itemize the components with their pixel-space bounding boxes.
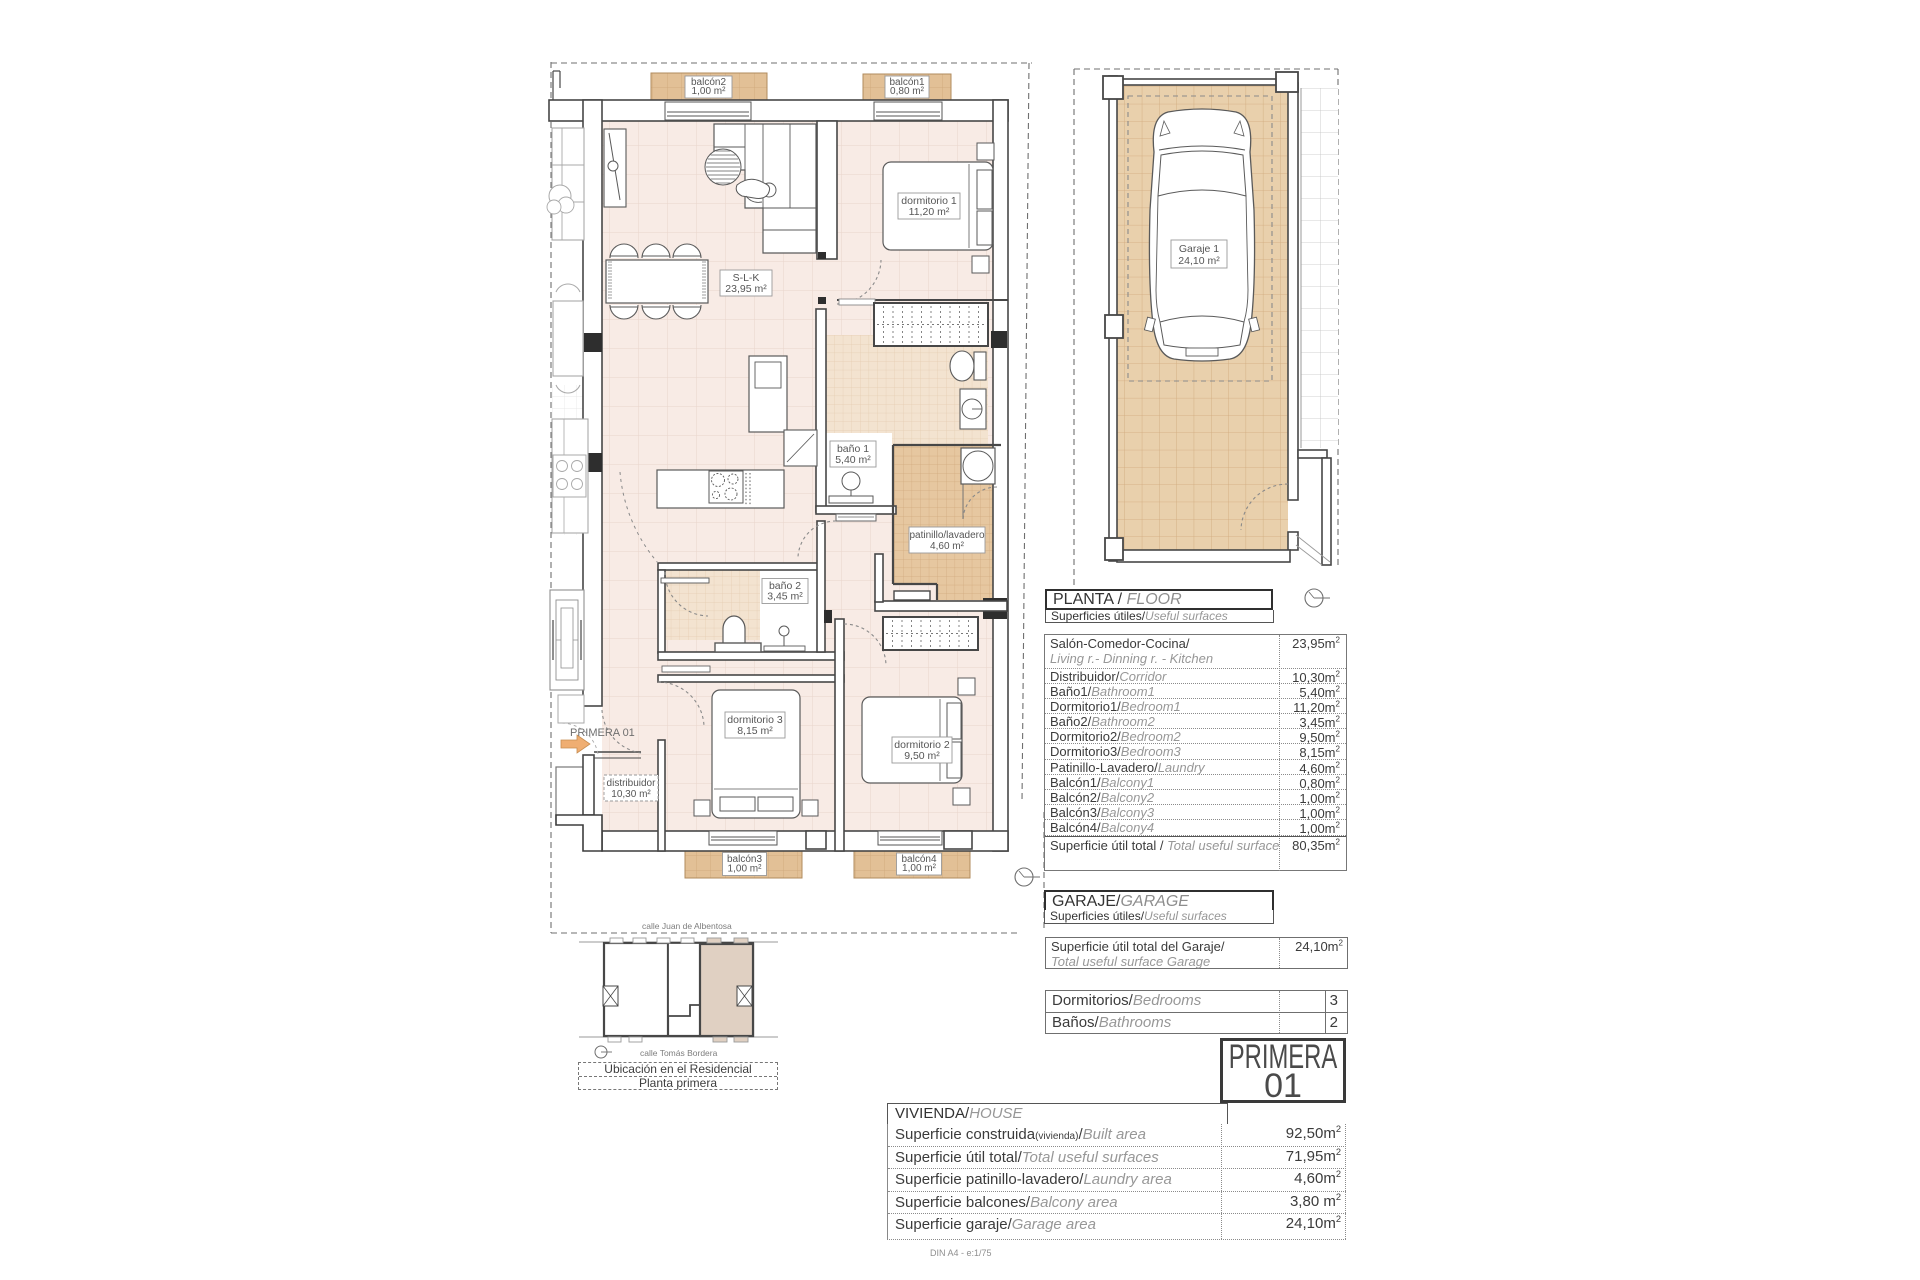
svg-text:10,30 m²: 10,30 m²	[611, 789, 651, 800]
svg-text:patinillo/lavadero: patinillo/lavadero	[909, 530, 984, 541]
svg-text:1,00 m²: 1,00 m²	[902, 863, 937, 874]
svg-text:3,45 m²: 3,45 m²	[767, 591, 803, 603]
svg-text:24,10 m²: 24,10 m²	[1178, 255, 1220, 267]
svg-text:23,95 m²: 23,95 m²	[725, 283, 767, 295]
svg-text:PRIMERA 01: PRIMERA 01	[570, 727, 635, 739]
svg-text:1,00 m²: 1,00 m²	[728, 864, 763, 875]
svg-text:0,80 m²: 0,80 m²	[890, 86, 925, 97]
svg-text:4,60 m²: 4,60 m²	[930, 541, 965, 552]
svg-text:9,50 m²: 9,50 m²	[904, 750, 940, 762]
svg-text:5,40 m²: 5,40 m²	[835, 454, 871, 466]
svg-text:Garaje 1: Garaje 1	[1179, 243, 1219, 255]
svg-text:1,00 m²: 1,00 m²	[692, 86, 727, 97]
svg-text:distribuidor: distribuidor	[607, 778, 657, 789]
svg-text:8,15 m²: 8,15 m²	[737, 725, 773, 737]
svg-text:11,20 m²: 11,20 m²	[909, 206, 950, 218]
